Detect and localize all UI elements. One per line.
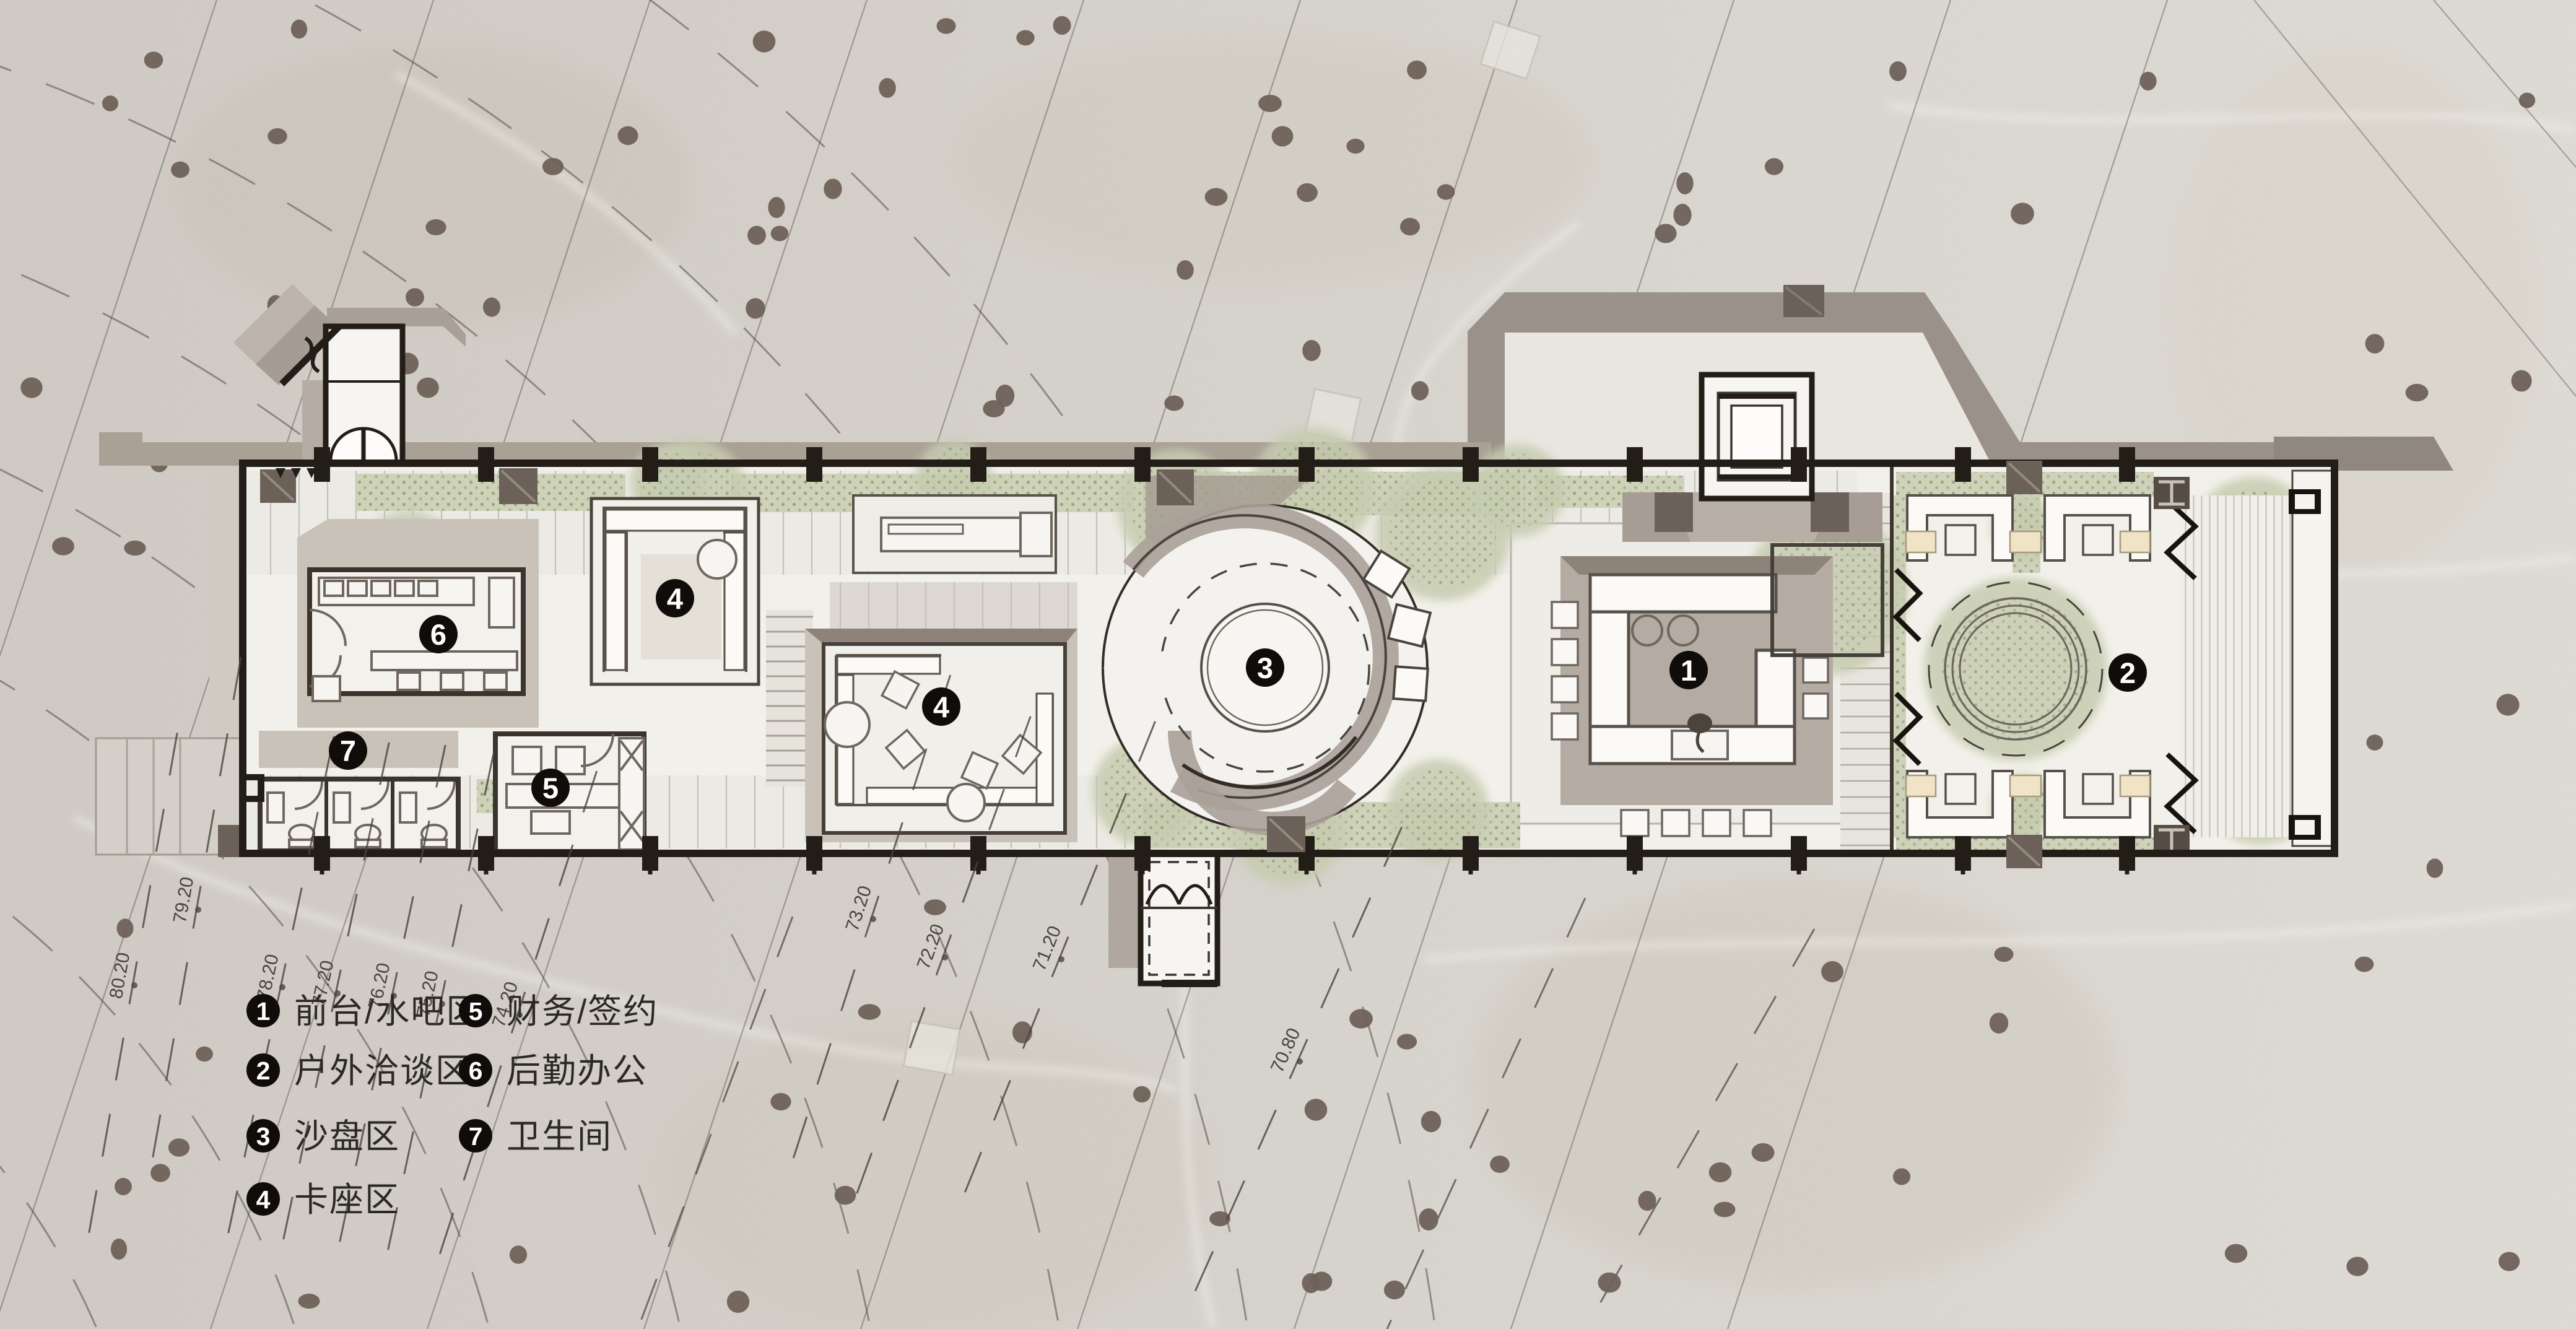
tree-dot bbox=[1305, 1099, 1328, 1120]
tree-dot bbox=[268, 128, 287, 144]
legend-label: 卡座区 bbox=[294, 1180, 400, 1219]
legend-marker-number: 4 bbox=[256, 1185, 271, 1214]
tree-dot bbox=[1133, 1086, 1151, 1102]
tree-dot bbox=[1346, 139, 1364, 154]
tree-dot bbox=[1673, 204, 1691, 226]
tree-dot bbox=[1164, 396, 1183, 411]
legend-label: 沙盘区 bbox=[294, 1117, 400, 1156]
legend-marker-number: 5 bbox=[469, 997, 483, 1026]
tree-dot bbox=[196, 1047, 213, 1061]
contour-point bbox=[870, 916, 876, 922]
tree-dot bbox=[1490, 1156, 1510, 1173]
contour-point bbox=[195, 907, 201, 913]
tree-dot bbox=[2225, 1244, 2247, 1263]
reception-water-bar bbox=[1552, 545, 1882, 836]
legend-marker-number: 6 bbox=[469, 1057, 483, 1085]
tree-dot bbox=[858, 1004, 881, 1019]
tree-dot bbox=[117, 918, 134, 938]
area-marker-7: 7 bbox=[329, 731, 367, 770]
area-marker-1: 1 bbox=[1669, 651, 1708, 689]
room-logistics-office bbox=[297, 519, 539, 728]
room-finance-signing bbox=[495, 734, 644, 852]
contour-point bbox=[1297, 1058, 1303, 1065]
tree-dot bbox=[2367, 734, 2383, 751]
area-marker-number: 1 bbox=[1681, 654, 1697, 687]
south-entrance-vestibule bbox=[1108, 853, 1217, 983]
tree-dot bbox=[937, 18, 956, 33]
tree-dot bbox=[1407, 61, 1427, 80]
legend-item-3: 3沙盘区 bbox=[246, 1117, 400, 1156]
contour-point bbox=[279, 984, 285, 990]
tree-canopy bbox=[1924, 577, 2107, 760]
legend-marker-number: 2 bbox=[256, 1057, 271, 1085]
tree-canopy bbox=[1472, 444, 1565, 537]
column bbox=[1134, 447, 1151, 482]
column bbox=[1299, 447, 1315, 482]
tree-dot bbox=[542, 158, 563, 175]
tree-dot bbox=[1258, 95, 1282, 112]
tree-dot bbox=[1205, 188, 1228, 206]
tree-dot bbox=[2499, 1252, 2520, 1271]
tree-dot bbox=[115, 1178, 132, 1195]
tree-dot bbox=[52, 537, 74, 555]
tree-dot bbox=[746, 298, 765, 318]
tree-dot bbox=[144, 51, 163, 68]
tree-dot bbox=[996, 385, 1014, 407]
legend-marker-number: 1 bbox=[256, 997, 271, 1026]
tree-dot bbox=[618, 126, 638, 145]
tree-dot bbox=[1714, 1202, 1736, 1218]
tree-dot bbox=[102, 95, 118, 111]
tree-dot bbox=[1893, 1169, 1910, 1185]
tree-dot bbox=[20, 377, 42, 398]
tree-dot bbox=[1297, 183, 1318, 202]
tree-dot bbox=[2519, 93, 2535, 108]
floor-plan-drawing: 80.2079.2078.2077.2076.2075.2074.2073.20… bbox=[0, 0, 2576, 1329]
tree-dot bbox=[1995, 947, 2014, 962]
legend-label: 财务/签约 bbox=[507, 992, 658, 1031]
tree-dot bbox=[770, 1093, 791, 1110]
legend-marker-number: 7 bbox=[469, 1122, 483, 1151]
tree-dot bbox=[771, 226, 789, 242]
tree-dot bbox=[1302, 1273, 1320, 1293]
tree-dot bbox=[2427, 858, 2443, 878]
area-marker-4: 4 bbox=[656, 579, 694, 617]
contour-point bbox=[1058, 956, 1064, 962]
area-marker-number: 2 bbox=[2120, 656, 2136, 689]
tree-dot bbox=[483, 297, 500, 316]
area-marker-number: 5 bbox=[542, 772, 559, 804]
tree-dot bbox=[417, 378, 439, 398]
area-marker-number: 7 bbox=[340, 734, 356, 767]
tree-speckle bbox=[1943, 596, 2089, 743]
tree-dot bbox=[2011, 203, 2034, 224]
tree-dot bbox=[2355, 957, 2374, 972]
tree-dot bbox=[1272, 126, 1294, 147]
tree-dot bbox=[2346, 1257, 2368, 1276]
tree-dot bbox=[1177, 260, 1194, 280]
area-marker-3: 3 bbox=[1246, 648, 1284, 687]
tree-dot bbox=[747, 226, 766, 245]
floor-plan-page: 80.2079.2078.2077.2076.2075.2074.2073.20… bbox=[0, 0, 2576, 1329]
tree-dot bbox=[111, 1239, 127, 1260]
tree-dot bbox=[1016, 30, 1034, 46]
tree-dot bbox=[727, 1291, 749, 1313]
contour-point bbox=[131, 982, 137, 988]
legend-item-7: 7卫生间 bbox=[459, 1117, 612, 1156]
east-gallery bbox=[2292, 471, 2334, 846]
column bbox=[1955, 447, 1971, 482]
tree-dot bbox=[1598, 1273, 1621, 1293]
area-marker-number: 3 bbox=[1257, 651, 1273, 684]
tree-dot bbox=[1638, 1191, 1656, 1211]
tree-dot bbox=[1397, 1034, 1417, 1049]
tree-dot bbox=[1765, 158, 1783, 175]
tree-dot bbox=[1411, 381, 1429, 400]
tree-dot bbox=[2365, 334, 2385, 354]
tree-dot bbox=[1655, 224, 1676, 243]
area-marker-4: 4 bbox=[922, 687, 960, 726]
tree-dot bbox=[2511, 370, 2531, 392]
tree-dot bbox=[924, 899, 946, 915]
column bbox=[806, 447, 822, 482]
area-marker-2: 2 bbox=[2108, 653, 2147, 692]
tree-dot bbox=[298, 1294, 320, 1309]
tree-dot bbox=[824, 179, 842, 199]
tree-dot bbox=[406, 288, 424, 307]
tree-dot bbox=[1752, 1143, 1775, 1162]
column bbox=[2119, 447, 2135, 482]
tree-dot bbox=[171, 162, 189, 178]
tree-dot bbox=[835, 1186, 856, 1205]
tree-dot bbox=[1889, 61, 1907, 81]
column bbox=[478, 447, 494, 482]
tree-dot bbox=[425, 219, 446, 235]
area-marker-6: 6 bbox=[419, 615, 458, 653]
tree-dot bbox=[1421, 1111, 1441, 1132]
tree-dot bbox=[1676, 172, 1693, 194]
column bbox=[314, 447, 330, 482]
legend-label: 前台/水吧区 bbox=[294, 992, 481, 1031]
tree-dot bbox=[291, 20, 307, 39]
area-marker-5: 5 bbox=[531, 769, 570, 807]
tree-dot bbox=[1419, 1208, 1438, 1231]
column bbox=[970, 447, 986, 482]
area-marker-number: 6 bbox=[430, 618, 446, 651]
tree-dot bbox=[753, 30, 776, 52]
column bbox=[1627, 447, 1643, 482]
legend-label: 卫生间 bbox=[507, 1117, 612, 1156]
area-marker-number: 4 bbox=[667, 582, 683, 615]
column bbox=[1463, 447, 1479, 482]
tree-dot bbox=[2497, 694, 2520, 715]
tree-dot bbox=[2406, 384, 2429, 401]
legend-label: 户外洽谈区 bbox=[294, 1052, 471, 1090]
tree-dot bbox=[1053, 16, 1071, 35]
legend-item-4: 4卡座区 bbox=[246, 1180, 400, 1219]
tree-dot bbox=[879, 78, 896, 98]
booth-area-lower bbox=[805, 629, 1077, 842]
tree-dot bbox=[1437, 184, 1455, 199]
tree-dot bbox=[168, 1138, 189, 1156]
column bbox=[1791, 447, 1807, 482]
tree-dot bbox=[1384, 1281, 1405, 1299]
tree-dot bbox=[1349, 1009, 1373, 1028]
legend-marker-number: 3 bbox=[256, 1122, 271, 1151]
legend-label: 后勤办公 bbox=[507, 1052, 648, 1090]
tree-dot bbox=[2139, 72, 2156, 90]
tree-dot bbox=[150, 1164, 170, 1182]
tree-dot bbox=[1302, 340, 1321, 361]
tree-dot bbox=[1990, 1013, 2008, 1034]
tree-dot bbox=[510, 1245, 527, 1264]
display-table-room bbox=[853, 495, 1056, 573]
tree-dot bbox=[1821, 961, 1843, 982]
tree-dot bbox=[1400, 218, 1420, 235]
tree-dot bbox=[768, 197, 785, 218]
tree-dot bbox=[124, 541, 146, 556]
tree-dot bbox=[1709, 1162, 1732, 1182]
contour-point bbox=[942, 954, 948, 961]
area-marker-number: 4 bbox=[933, 691, 949, 723]
column bbox=[642, 447, 658, 482]
